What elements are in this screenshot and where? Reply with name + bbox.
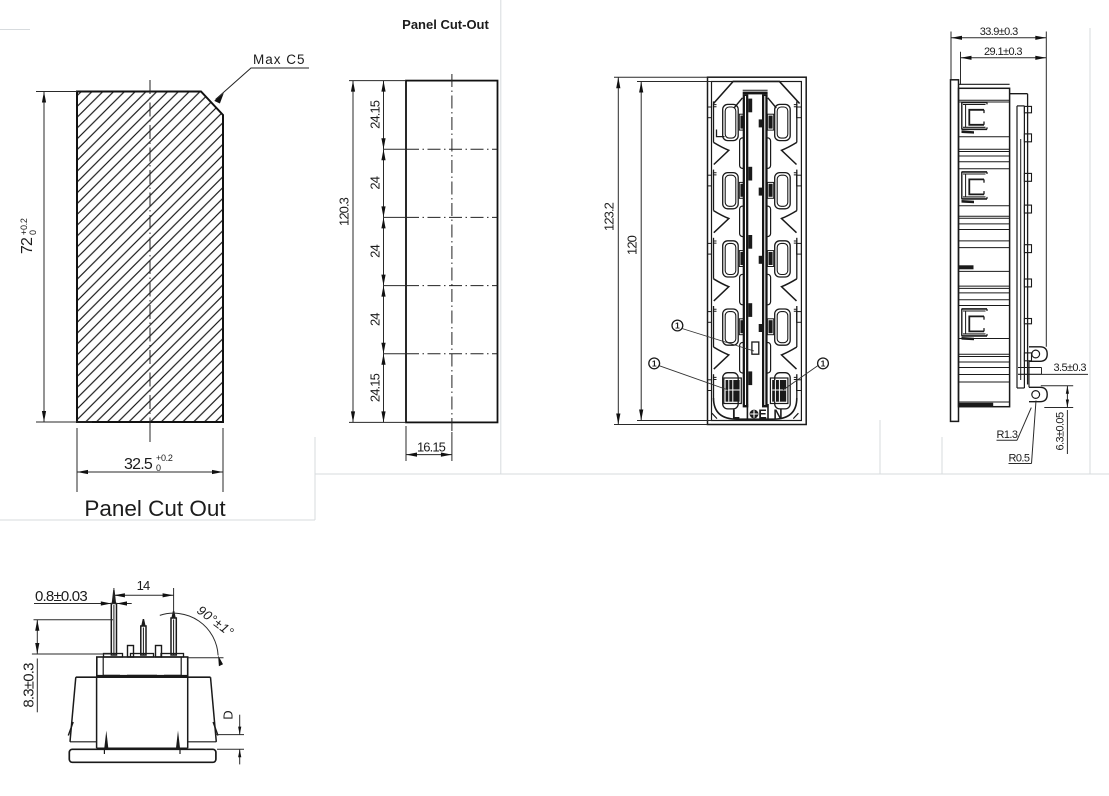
svg-text:123.2: 123.2 <box>602 202 617 231</box>
svg-text:L: L <box>732 408 740 422</box>
svg-text:24.15: 24.15 <box>368 373 383 402</box>
svg-text:1: 1 <box>675 321 680 331</box>
svg-text:72: 72 <box>19 237 36 254</box>
svg-text:Panel Cut Out: Panel Cut Out <box>84 496 226 521</box>
svg-text:1: 1 <box>652 359 657 369</box>
svg-text:29.1±0.3: 29.1±0.3 <box>984 46 1022 58</box>
svg-text:33.9±0.3: 33.9±0.3 <box>980 26 1018 38</box>
svg-text:3.5±0.3: 3.5±0.3 <box>1054 362 1087 374</box>
svg-text:16.15: 16.15 <box>417 440 446 455</box>
svg-text:N: N <box>773 408 782 422</box>
svg-text:24: 24 <box>368 176 383 189</box>
svg-text:32.5: 32.5 <box>124 456 153 473</box>
svg-text:14: 14 <box>137 578 150 593</box>
svg-text:0: 0 <box>28 230 38 235</box>
svg-text:+0.2: +0.2 <box>156 453 173 463</box>
svg-text:120.3: 120.3 <box>337 197 352 226</box>
svg-text:24.15: 24.15 <box>368 100 383 129</box>
svg-text:6.3±0.05: 6.3±0.05 <box>1054 412 1066 450</box>
svg-text:0: 0 <box>156 463 161 473</box>
svg-text:Panel Cut-Out: Panel Cut-Out <box>402 17 489 32</box>
svg-text:0.8±0.03: 0.8±0.03 <box>35 588 87 605</box>
svg-text:24: 24 <box>368 245 383 258</box>
svg-text:Max C5: Max C5 <box>253 52 306 67</box>
svg-text:R1.3: R1.3 <box>997 429 1018 441</box>
svg-text:D: D <box>221 710 236 719</box>
svg-text:120: 120 <box>625 235 640 255</box>
svg-text:R0.5: R0.5 <box>1009 453 1030 465</box>
svg-text:1: 1 <box>821 359 826 369</box>
svg-text:90°±1°: 90°±1° <box>194 602 237 639</box>
svg-text:E: E <box>758 408 766 422</box>
svg-text:8.3±0.3: 8.3±0.3 <box>20 663 37 708</box>
svg-text:24: 24 <box>368 313 383 326</box>
